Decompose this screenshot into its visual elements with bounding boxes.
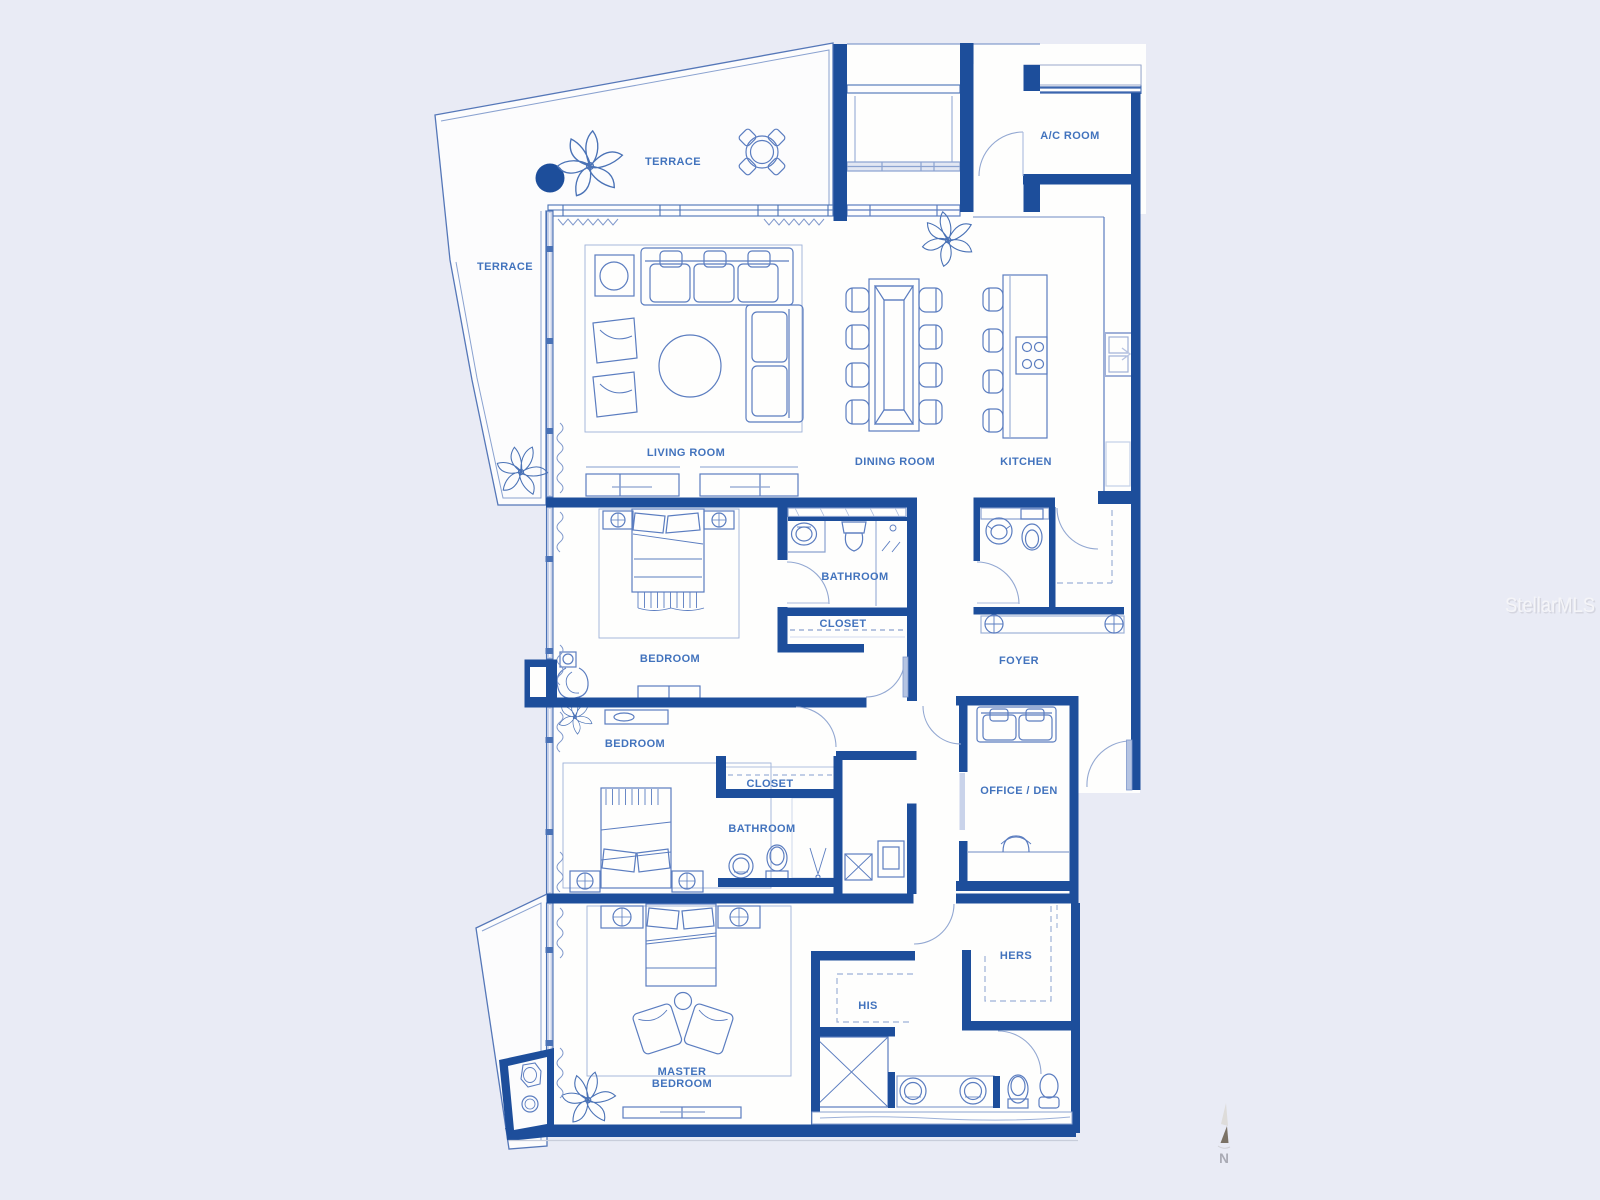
svg-text:BEDROOM: BEDROOM [640, 653, 700, 665]
svg-text:CLOSET: CLOSET [819, 618, 866, 630]
svg-text:TERRACE: TERRACE [645, 156, 701, 168]
svg-text:DINING ROOM: DINING ROOM [855, 456, 935, 468]
svg-text:BATHROOM: BATHROOM [821, 571, 888, 583]
svg-text:CLOSET: CLOSET [746, 778, 793, 790]
svg-text:FOYER: FOYER [999, 655, 1039, 667]
svg-text:StellarMLS: StellarMLS [1505, 594, 1595, 617]
svg-text:A/C ROOM: A/C ROOM [1040, 130, 1099, 142]
svg-text:OFFICE / DEN: OFFICE / DEN [980, 785, 1058, 797]
svg-text:BEDROOM: BEDROOM [605, 738, 665, 750]
svg-text:HERS: HERS [1000, 950, 1032, 962]
svg-text:BATHROOM: BATHROOM [728, 823, 795, 835]
svg-text:N: N [1219, 1151, 1229, 1166]
svg-text:MASTER: MASTER [658, 1066, 707, 1078]
svg-text:BEDROOM: BEDROOM [652, 1078, 712, 1090]
svg-text:HIS: HIS [858, 1000, 878, 1012]
svg-text:KITCHEN: KITCHEN [1000, 456, 1052, 468]
svg-text:TERRACE: TERRACE [477, 261, 533, 273]
svg-text:LIVING ROOM: LIVING ROOM [647, 447, 725, 459]
